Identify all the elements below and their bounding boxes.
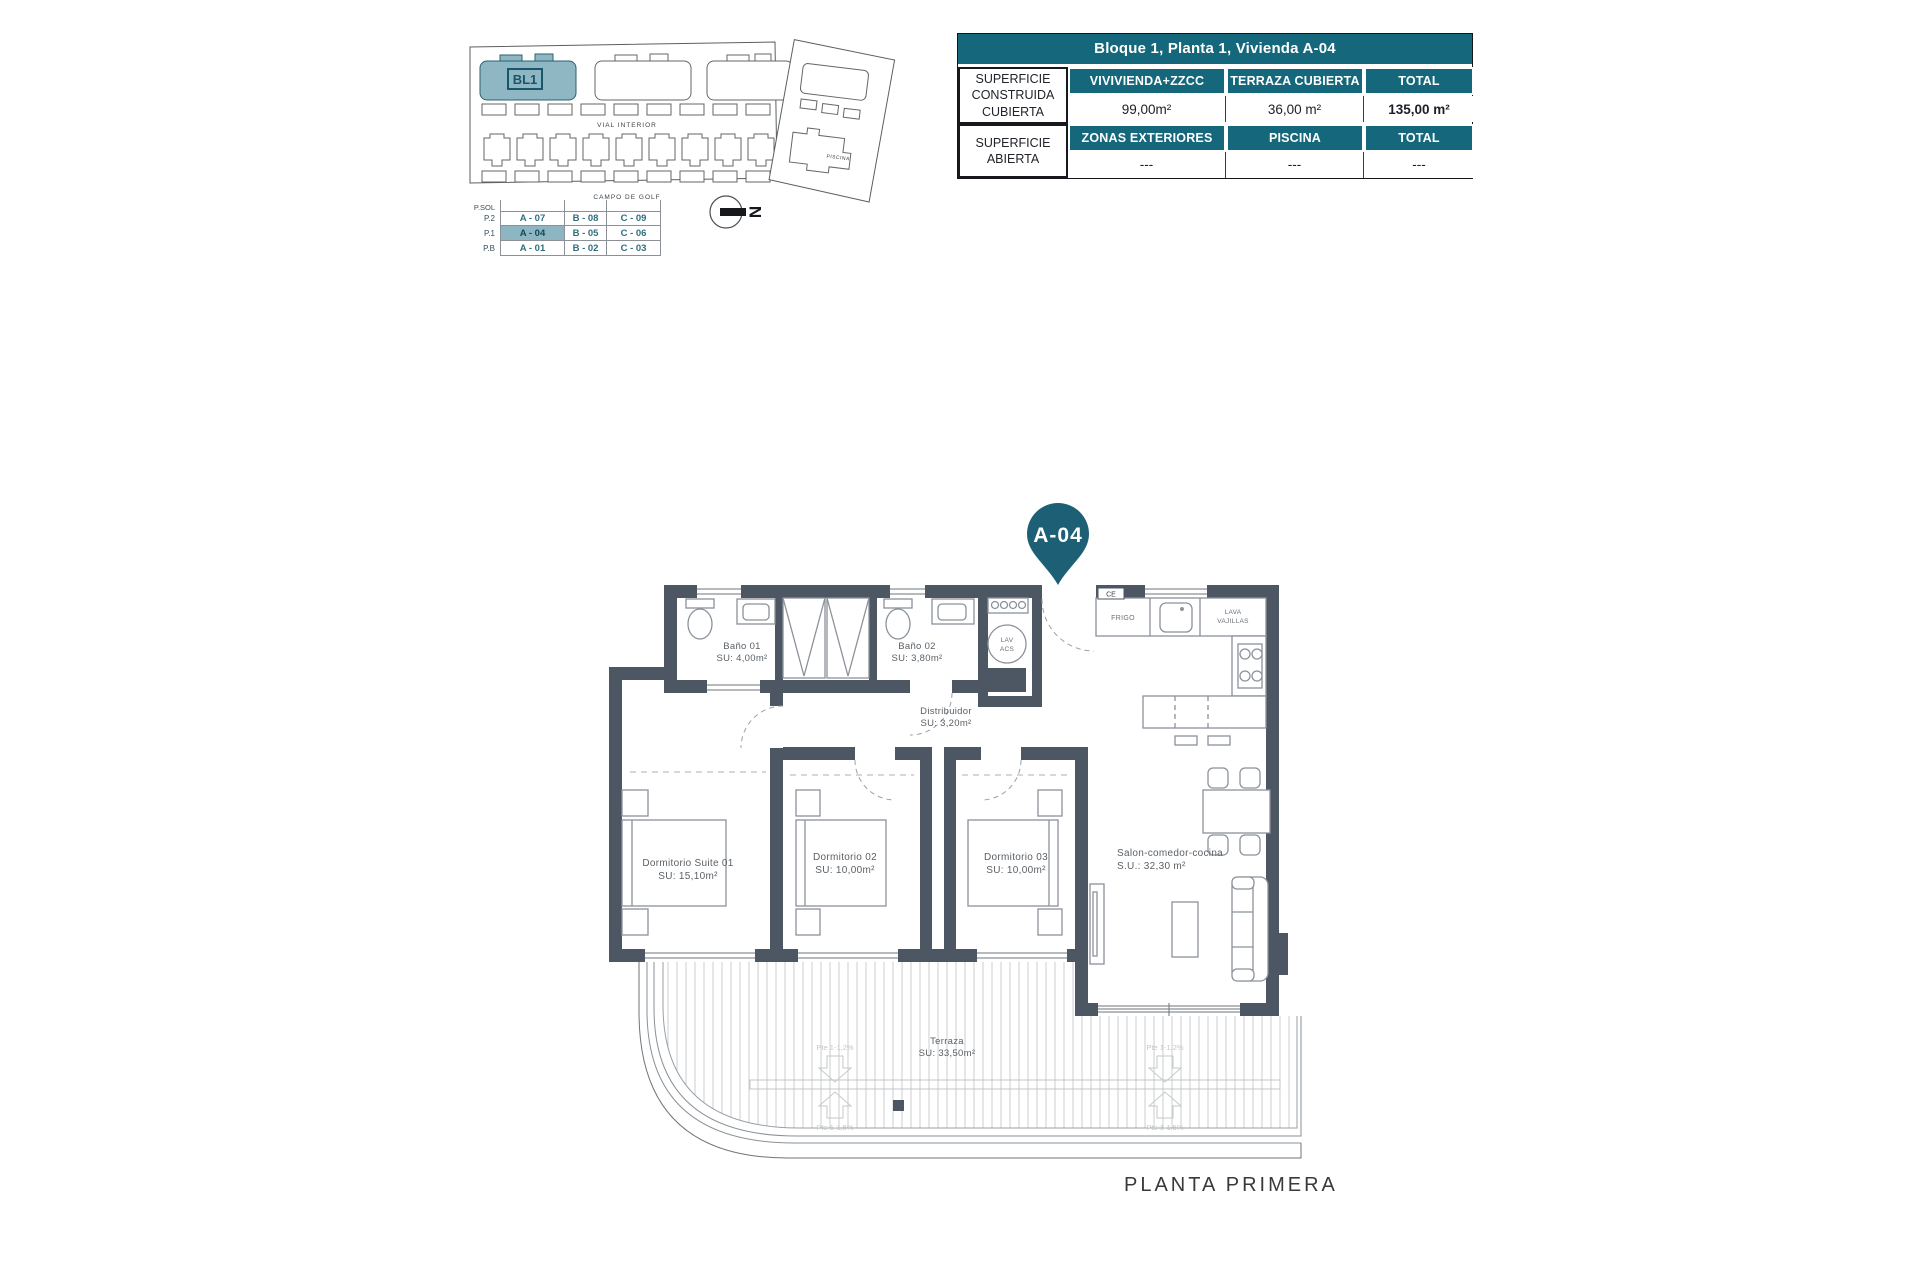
terrace: Pte 1-1,2% Pte 1-1,5% Pte 1-1,2% Pte 1-1… <box>639 950 1301 1165</box>
terrace-railing-inner <box>654 962 1301 1136</box>
room-area: SU: 3,80m² <box>891 653 942 664</box>
room-name: Distribuidor <box>920 706 972 717</box>
north-arrow-icon: N <box>698 193 798 245</box>
value-piscina: --- <box>1226 152 1364 178</box>
location-pin-icon: A-04 <box>1027 503 1089 585</box>
cooktop-icon <box>1232 636 1266 696</box>
coffee-table <box>1172 902 1198 957</box>
room-area: SU: 10,00m² <box>815 865 875 876</box>
level-row-label: P.1 <box>462 226 500 241</box>
floor-plan: Pte 1-1,2% Pte 1-1,5% Pte 1-1,2% Pte 1-1… <box>595 495 1305 1165</box>
room-area: SU: 10,00m² <box>986 865 1046 876</box>
room-name: Dormitorio 03 <box>984 852 1048 863</box>
north-label: N <box>746 206 765 218</box>
room-name: Dormitorio Suite 01 <box>642 858 733 869</box>
unit-cell: B - 02 <box>564 241 606 256</box>
room-area: SU: 15,10m² <box>658 871 718 882</box>
toilet-icon <box>884 599 912 639</box>
room-name: Baño 02 <box>898 641 936 652</box>
site-plan-map: BL1 <box>455 28 905 223</box>
kitchen-island <box>1143 696 1266 745</box>
col-header: VIVIVIENDA+ZZCC <box>1068 67 1226 95</box>
unit-cell: A - 07 <box>500 211 564 226</box>
unit-cell: C - 06 <box>606 226 661 241</box>
electrical-panel: CE <box>1098 588 1124 599</box>
unit-cell: B - 05 <box>564 226 606 241</box>
lav-label: LAV <box>1001 637 1014 644</box>
toilet-icon <box>686 599 714 639</box>
parking-row-2 <box>482 171 770 182</box>
houses-row <box>484 134 774 166</box>
tv-icon <box>1093 892 1097 956</box>
room-area: S.U.: 32,30 m² <box>1117 861 1186 872</box>
dorm2-door-swing <box>855 760 895 800</box>
bl1-label: BL1 <box>513 72 538 87</box>
col-header: TOTAL <box>1364 67 1474 95</box>
surface-info-table: Bloque 1, Planta 1, Vivienda A-04 SUPERF… <box>957 33 1473 179</box>
room-name: Baño 01 <box>723 641 761 652</box>
value-zonas-exteriores: --- <box>1068 152 1226 178</box>
laundry-icon <box>988 598 1028 663</box>
lavavajillas-label: VAJILLAS <box>1217 618 1249 625</box>
col-header: TERRAZA CUBIERTA <box>1226 67 1364 95</box>
ce-label: CE <box>1106 592 1116 599</box>
col-header: ZONAS EXTERIORES <box>1068 124 1226 152</box>
col-header: TOTAL <box>1364 124 1474 152</box>
slope-label: Pte 1-1,2% <box>1146 1043 1183 1052</box>
dorm3-door-swing <box>981 760 1021 800</box>
levels-table: P.SOL P.2 A - 07 B - 08 C - 09 P.1 A - 0… <box>462 200 661 256</box>
wardrobe-icon <box>783 598 869 678</box>
row-label-superficie-construida: SUPERFICIE CONSTRUIDA CUBIERTA <box>958 67 1068 124</box>
level-cell <box>606 200 661 211</box>
row-label-superficie-abierta: SUPERFICIE ABIERTA <box>958 124 1068 178</box>
dining-table <box>1203 768 1270 855</box>
pin-label: A-04 <box>1033 524 1083 547</box>
slope-label: Pte 1-1,5% <box>1146 1123 1183 1132</box>
building-3 <box>707 54 793 100</box>
suite-door-swing <box>741 706 783 748</box>
parking-row-1 <box>482 104 770 115</box>
info-table-title: Bloque 1, Planta 1, Vivienda A-04 <box>958 34 1472 67</box>
room-name: Dormitorio 02 <box>813 852 877 863</box>
room-area: SU: 3,20m² <box>920 718 971 729</box>
level-row-label: P.B <box>462 241 500 256</box>
terrace-scupper <box>893 1100 904 1111</box>
col-header: PISCINA <box>1226 124 1364 152</box>
kitchen-sink-icon <box>1160 603 1192 632</box>
lavavajillas-label: LAVA <box>1225 609 1242 616</box>
sink-icon <box>737 599 775 624</box>
unit-cell: C - 03 <box>606 241 661 256</box>
room-name-terraza: Terraza <box>930 1036 964 1047</box>
slope-label: Pte 1-1,5% <box>816 1123 853 1132</box>
entrance-door-swing <box>1042 599 1094 651</box>
sink-icon <box>932 599 974 624</box>
value-terraza-cubierta: 36,00 m² <box>1226 96 1364 122</box>
value-total-abierta: --- <box>1364 152 1474 178</box>
sofa-icon <box>1232 877 1268 981</box>
unit-cell: B - 08 <box>564 211 606 226</box>
level-row-label: P.2 <box>462 211 500 226</box>
slope-label: Pte 1-1,2% <box>816 1043 853 1052</box>
level-row-label: P.SOL <box>462 200 500 211</box>
unit-cell-highlighted: A - 04 <box>500 226 564 241</box>
building-2 <box>595 54 691 100</box>
level-cell <box>500 200 564 211</box>
room-name: Salon-comedor-cocina <box>1117 848 1223 859</box>
frigo-label: FRIGO <box>1111 615 1135 622</box>
value-vivienda: 99,00m² <box>1068 96 1226 122</box>
unit-cell: A - 01 <box>500 241 564 256</box>
value-total-cubierta: 135,00 m² <box>1364 96 1474 122</box>
room-area: SU: 4,00m² <box>716 653 767 664</box>
acs-label: ACS <box>1000 646 1015 653</box>
page-title: PLANTA PRIMERA <box>1124 1174 1338 1197</box>
room-labels: Baño 01 SU: 4,00m² Baño 02 SU: 3,80m² Di… <box>642 641 1223 882</box>
level-cell <box>564 200 606 211</box>
unit-cell: C - 09 <box>606 211 661 226</box>
terrace-decking <box>668 950 1289 1165</box>
room-area-terraza: SU: 33,50m² <box>919 1048 976 1059</box>
vial-interior-label: VIAL INTERIOR <box>597 122 657 129</box>
